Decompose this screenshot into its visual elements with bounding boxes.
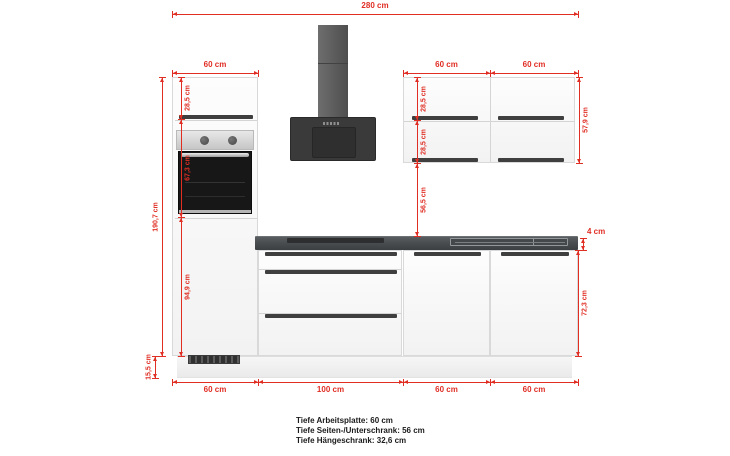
dimension-label: 60 cm xyxy=(435,386,458,394)
dimension-label: 56,5 cm xyxy=(421,187,428,213)
dimension-label: 280 cm xyxy=(361,2,388,10)
dimension-label: 67,3 cm xyxy=(185,155,192,181)
dimension-label: 72,3 cm xyxy=(582,290,589,316)
dimension-label: 60 cm xyxy=(204,386,227,394)
dimension-label: 100 cm xyxy=(317,386,344,394)
dimension-label: 190,7 cm xyxy=(153,202,160,232)
note-wall-cabinet-depth: Tiefe Hängeschrank: 32,6 cm xyxy=(296,436,425,446)
note-base-cabinet-depth: Tiefe Seiten-/Unterschrank: 56 cm xyxy=(296,426,425,436)
dimension-label: 28,5 cm xyxy=(421,129,428,155)
dimension-layer: 280 cm60 cm60 cm60 cm190,7 cm15,5 cm28,5… xyxy=(0,0,730,456)
dimension-label: 28,5 cm xyxy=(421,86,428,112)
note-worktop-depth: Tiefe Arbeitsplatte: 60 cm xyxy=(296,416,425,426)
dimension-label: 28,5 cm xyxy=(185,85,192,111)
footer-notes: Tiefe Arbeitsplatte: 60 cm Tiefe Seiten-… xyxy=(296,416,425,446)
dimension-label: 60 cm xyxy=(435,61,458,69)
dimension-label: 94,9 cm xyxy=(185,274,192,300)
kitchen-dimension-diagram: 280 cm60 cm60 cm60 cm190,7 cm15,5 cm28,5… xyxy=(0,0,730,456)
dimension-label: 57,9 cm xyxy=(583,107,590,133)
dimension-label: 15,5 cm xyxy=(146,354,153,380)
dimension-label: 60 cm xyxy=(523,61,546,69)
dimension-label: 4 cm xyxy=(587,228,605,236)
dimension-label: 60 cm xyxy=(204,61,227,69)
dimension-label: 60 cm xyxy=(523,386,546,394)
